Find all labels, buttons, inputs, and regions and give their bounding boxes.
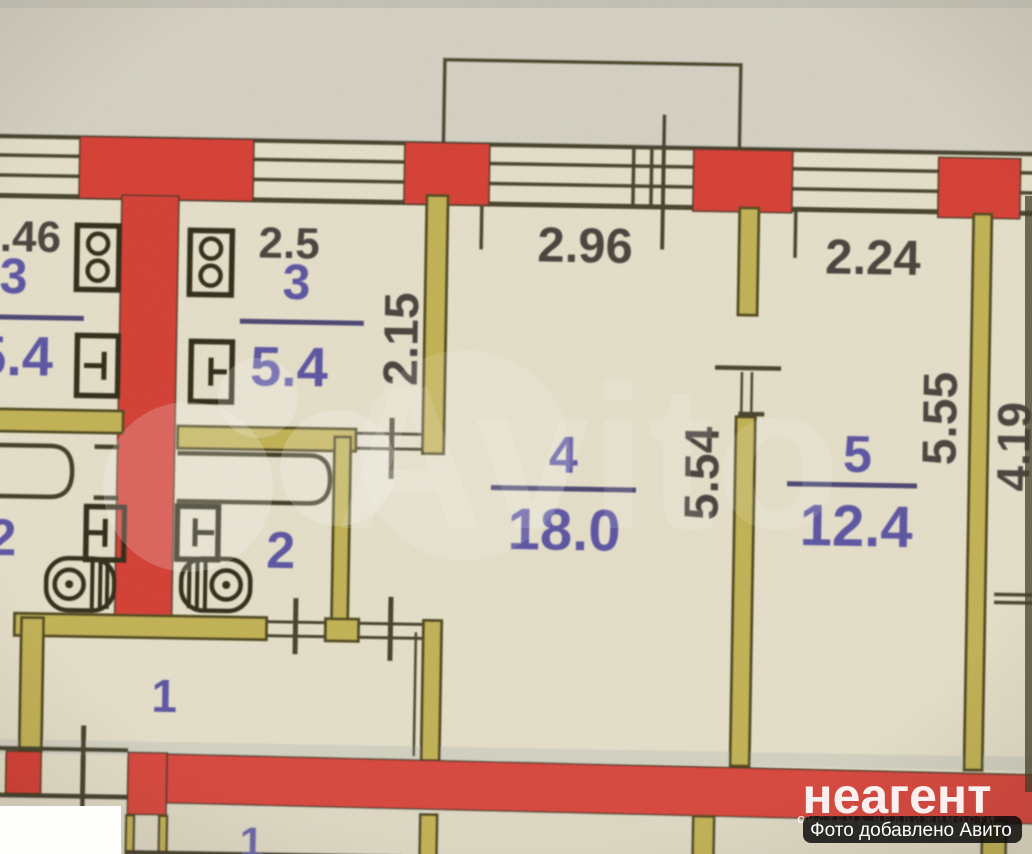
svg-text:Фото добавлено Авито: Фото добавлено Авито [810,820,1012,841]
